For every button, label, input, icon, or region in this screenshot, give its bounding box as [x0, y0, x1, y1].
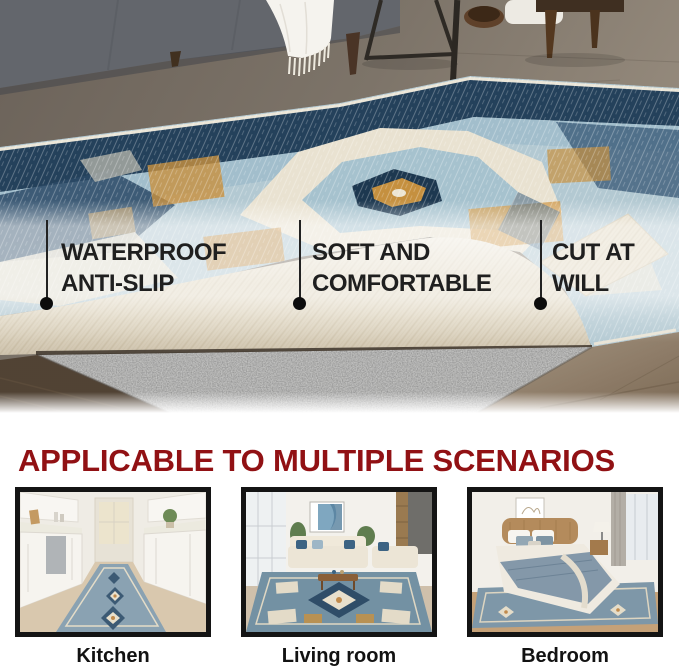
callout-text-line2: ANTI-SLIP: [61, 270, 174, 297]
callout-label: SOFT ANDCOMFORTABLE: [312, 237, 491, 299]
hero-photo: WATERPROOFANTI-SLIP SOFT ANDCOMFORTABLE …: [0, 0, 679, 413]
callout-dot: [534, 297, 547, 310]
scenario-card-kitchen: Kitchen: [15, 487, 211, 668]
callout-text-line1: SOFT AND: [312, 239, 430, 266]
photo-frame: [15, 487, 211, 637]
callout-label: WATERPROOFANTI-SLIP: [61, 237, 226, 299]
callout-line: [46, 220, 48, 298]
card-caption: Bedroom: [467, 645, 663, 668]
kitchen-scene-image: [20, 492, 206, 632]
scenario-card-bedroom: Bedroom: [467, 487, 663, 668]
section-heading: APPLICABLE TO MULTIPLE SCENARIOS: [18, 444, 679, 478]
callout-text-line2: COMFORTABLE: [312, 270, 491, 297]
callout-text-line1: WATERPROOF: [61, 239, 226, 266]
bedroom-scene-image: [472, 492, 658, 632]
scenario-card-living-room: Living room: [241, 487, 437, 668]
living-room-scene-image: [246, 492, 432, 632]
hero-room-scene: [0, 0, 679, 413]
scenarios-section: APPLICABLE TO MULTIPLE SCENARIOS: [0, 444, 679, 668]
callout-dot: [40, 297, 53, 310]
callout-label: CUT ATWILL: [552, 237, 634, 299]
product-image: WATERPROOFANTI-SLIP SOFT ANDCOMFORTABLE …: [0, 0, 679, 670]
wooden-bowl: [464, 6, 504, 28]
photo-frame: [467, 487, 663, 637]
callout-text-line1: CUT AT: [552, 239, 634, 266]
card-caption: Kitchen: [15, 645, 211, 668]
callout-text-line2: WILL: [552, 270, 609, 297]
callout-line: [540, 220, 542, 298]
card-caption: Living room: [241, 645, 437, 668]
scenario-cards: Kitchen: [0, 487, 679, 668]
callout-line: [299, 220, 301, 298]
callout-dot: [293, 297, 306, 310]
photo-frame: [241, 487, 437, 637]
